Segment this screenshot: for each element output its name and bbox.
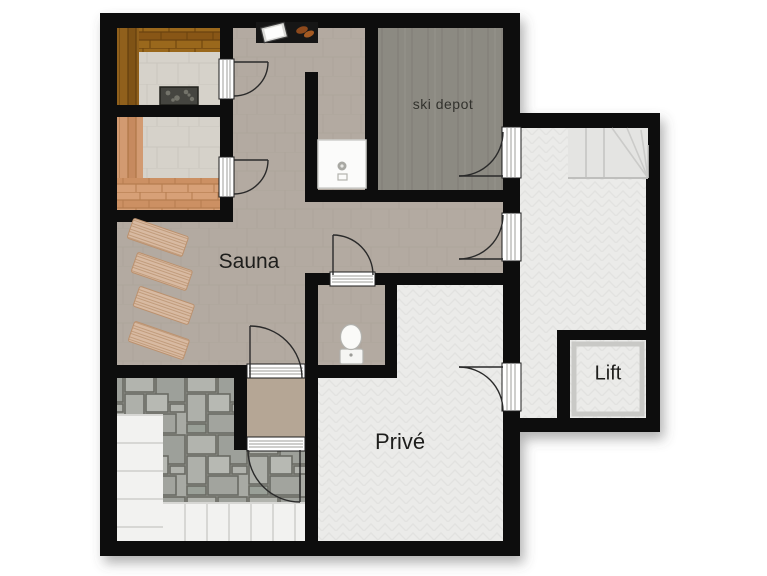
reception-desk xyxy=(256,22,318,43)
sauna-heater xyxy=(160,87,198,105)
room-label-prive: Privé xyxy=(375,429,425,455)
toilet-icon xyxy=(340,325,363,365)
room-label-lift: Lift xyxy=(595,363,622,386)
hall-winder-stairs xyxy=(568,128,648,178)
room-sauna-cabin-salmon xyxy=(117,117,220,210)
shower-icon xyxy=(318,140,366,188)
floor-plan: Sauna ski depot Privé Lift xyxy=(0,0,767,576)
room-label-sauna: Sauna xyxy=(219,250,280,274)
floor-plan-drawing xyxy=(0,0,767,576)
vestibule-floor xyxy=(247,378,305,438)
room-sauna-cabin-dark xyxy=(117,28,220,105)
room-label-ski-depot: ski depot xyxy=(413,96,474,112)
